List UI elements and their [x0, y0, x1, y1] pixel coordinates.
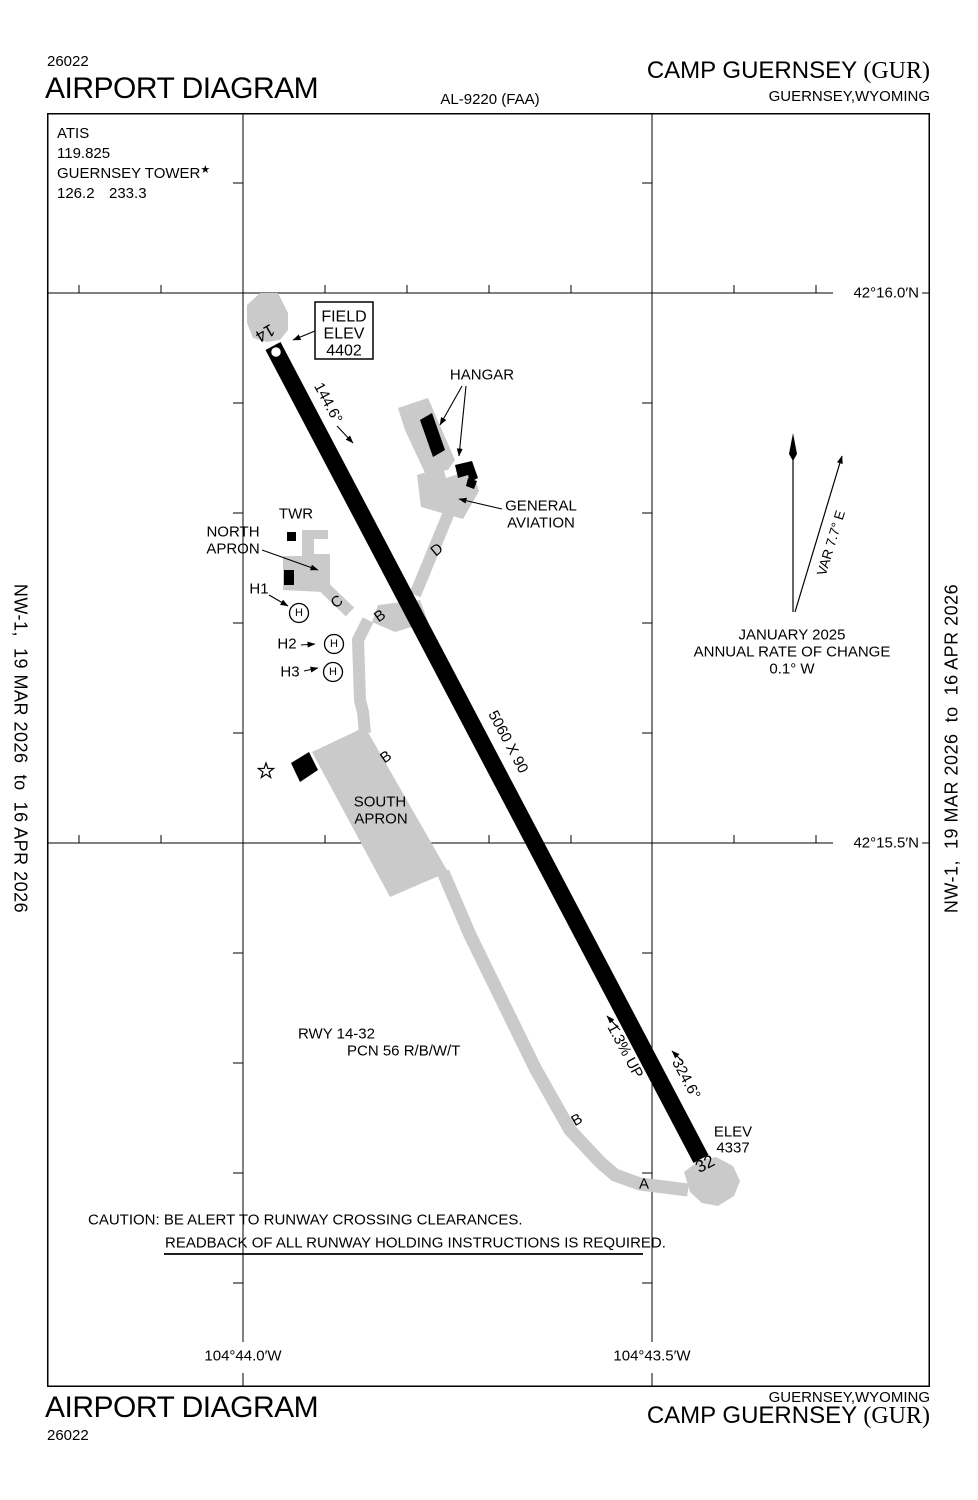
h2-arrow: [301, 644, 315, 645]
field-elev-value: 4402: [326, 343, 362, 360]
field-elev-line2: ELEV: [324, 326, 365, 343]
atis-frequency: 119.825: [57, 145, 110, 162]
variation-label: VAR 7.7° E: [814, 509, 848, 578]
hangar-text: HANGAR: [450, 367, 514, 384]
elev-32-value: 4337: [716, 1140, 749, 1157]
longitude-right-label: 104°43.5′W: [613, 1348, 691, 1365]
field-elev-line1: FIELD: [321, 309, 366, 326]
south-apron-text-2: APRON: [354, 811, 407, 828]
longitude-left-label: 104°44.0′W: [204, 1348, 282, 1365]
helipad-h3-symbol: H: [329, 666, 337, 678]
airport-id-text: (GUR): [863, 58, 930, 84]
south-apron-building: [291, 752, 318, 782]
tower-building: [287, 532, 296, 541]
atis-label: ATIS: [57, 125, 89, 142]
heading-14-arrow: [337, 426, 353, 443]
edition-banner-left: NW-1, 19 MAR 2026 to 16 APR 2026: [10, 534, 31, 964]
runway-14-threshold-circle: [271, 347, 282, 358]
north-apron-text-1: NORTH: [206, 524, 259, 541]
coordinate-labels: 42°16.0′N 42°15.5′N 104°44.0′W 104°43.5′…: [204, 285, 919, 1365]
page-title-top: AIRPORT DIAGRAM: [45, 72, 318, 106]
north-apron-text-2: APRON: [206, 541, 259, 558]
star-symbol: [258, 763, 273, 778]
chart-number-bottom: 26022: [47, 1427, 89, 1444]
runway-info-line2: PCN 56 R/B/W/T: [347, 1043, 460, 1060]
diagram-map: H H H FIELD ELEV 4402: [47, 113, 930, 1387]
variation-rate-2: 0.1° W: [769, 661, 815, 678]
h1-arrow: [269, 595, 288, 606]
helipad-h1-symbol: H: [295, 607, 303, 619]
taxiway-a-label: A: [639, 1176, 649, 1193]
latitude-bottom-label: 42°15.5′N: [853, 835, 919, 852]
city-state-top: GUERNSEY,WYOMING: [769, 88, 930, 105]
taxiway-b-north-path: [358, 620, 368, 733]
hangar-arrow-2: [459, 386, 466, 456]
true-north-arrowhead: [789, 433, 797, 461]
caution-note: CAUTION: BE ALERT TO RUNWAY CROSSING CLE…: [88, 1212, 666, 1255]
north-variation-arrows: VAR 7.7° E: [789, 433, 848, 612]
comm-box: ATIS 119.825 GUERNSEY TOWER★ 126.2233.3: [57, 125, 210, 202]
runway-info-line1: RWY 14-32: [298, 1026, 375, 1043]
chart-number-top: 26022: [47, 53, 89, 70]
page-title-bottom: AIRPORT DIAGRAM: [45, 1391, 318, 1425]
general-aviation-text-1: GENERAL: [505, 498, 577, 515]
north-apron-building: [284, 570, 294, 585]
airport-id-text-bottom: (GUR): [863, 1403, 930, 1429]
tower-label: GUERNSEY TOWER★: [57, 164, 210, 182]
h3-arrow: [304, 668, 318, 671]
south-apron-text-1: SOUTH: [354, 794, 407, 811]
variation-note: JANUARY 2025 ANNUAL RATE OF CHANGE 0.1° …: [694, 627, 891, 678]
variation-rate-1: ANNUAL RATE OF CHANGE: [694, 644, 891, 661]
h3-label: H3: [280, 664, 299, 681]
edition-banner-right: NW-1, 19 MAR 2026 to 16 APR 2026: [942, 534, 963, 964]
general-aviation-text-2: AVIATION: [507, 515, 575, 532]
airport-diagram-page: 26022 AIRPORT DIAGRAM AL-9220 (FAA) CAMP…: [0, 0, 978, 1500]
h2-label: H2: [277, 636, 296, 653]
field-elev-arrow: [293, 331, 315, 340]
caution-line2: READBACK OF ALL RUNWAY HOLDING INSTRUCTI…: [165, 1235, 666, 1252]
field-elev-box: FIELD ELEV 4402: [315, 302, 373, 360]
variation-date: JANUARY 2025: [738, 627, 845, 644]
h1-label: H1: [249, 581, 268, 598]
tower-star-icon: ★: [200, 164, 210, 176]
caution-line1: CAUTION: BE ALERT TO RUNWAY CROSSING CLE…: [88, 1212, 523, 1229]
tower-frequencies: 126.2233.3: [57, 185, 147, 202]
airport-name-text-bottom: CAMP GUERNSEY: [647, 1402, 857, 1429]
airport-name-bottom: CAMP GUERNSEY (GUR): [647, 1402, 930, 1430]
helipad-h2-symbol: H: [330, 638, 338, 650]
procedure-id: AL-9220 (FAA): [370, 91, 610, 108]
airport-name-text: CAMP GUERNSEY: [647, 57, 857, 84]
hangar-arrow-1: [440, 386, 462, 425]
graticule-ticks: [79, 183, 816, 1283]
tower-text: TWR: [279, 506, 313, 523]
airport-name-top: CAMP GUERNSEY (GUR): [647, 57, 930, 85]
elev-32-label: ELEV: [714, 1124, 752, 1141]
latitude-top-label: 42°16.0′N: [853, 285, 919, 302]
